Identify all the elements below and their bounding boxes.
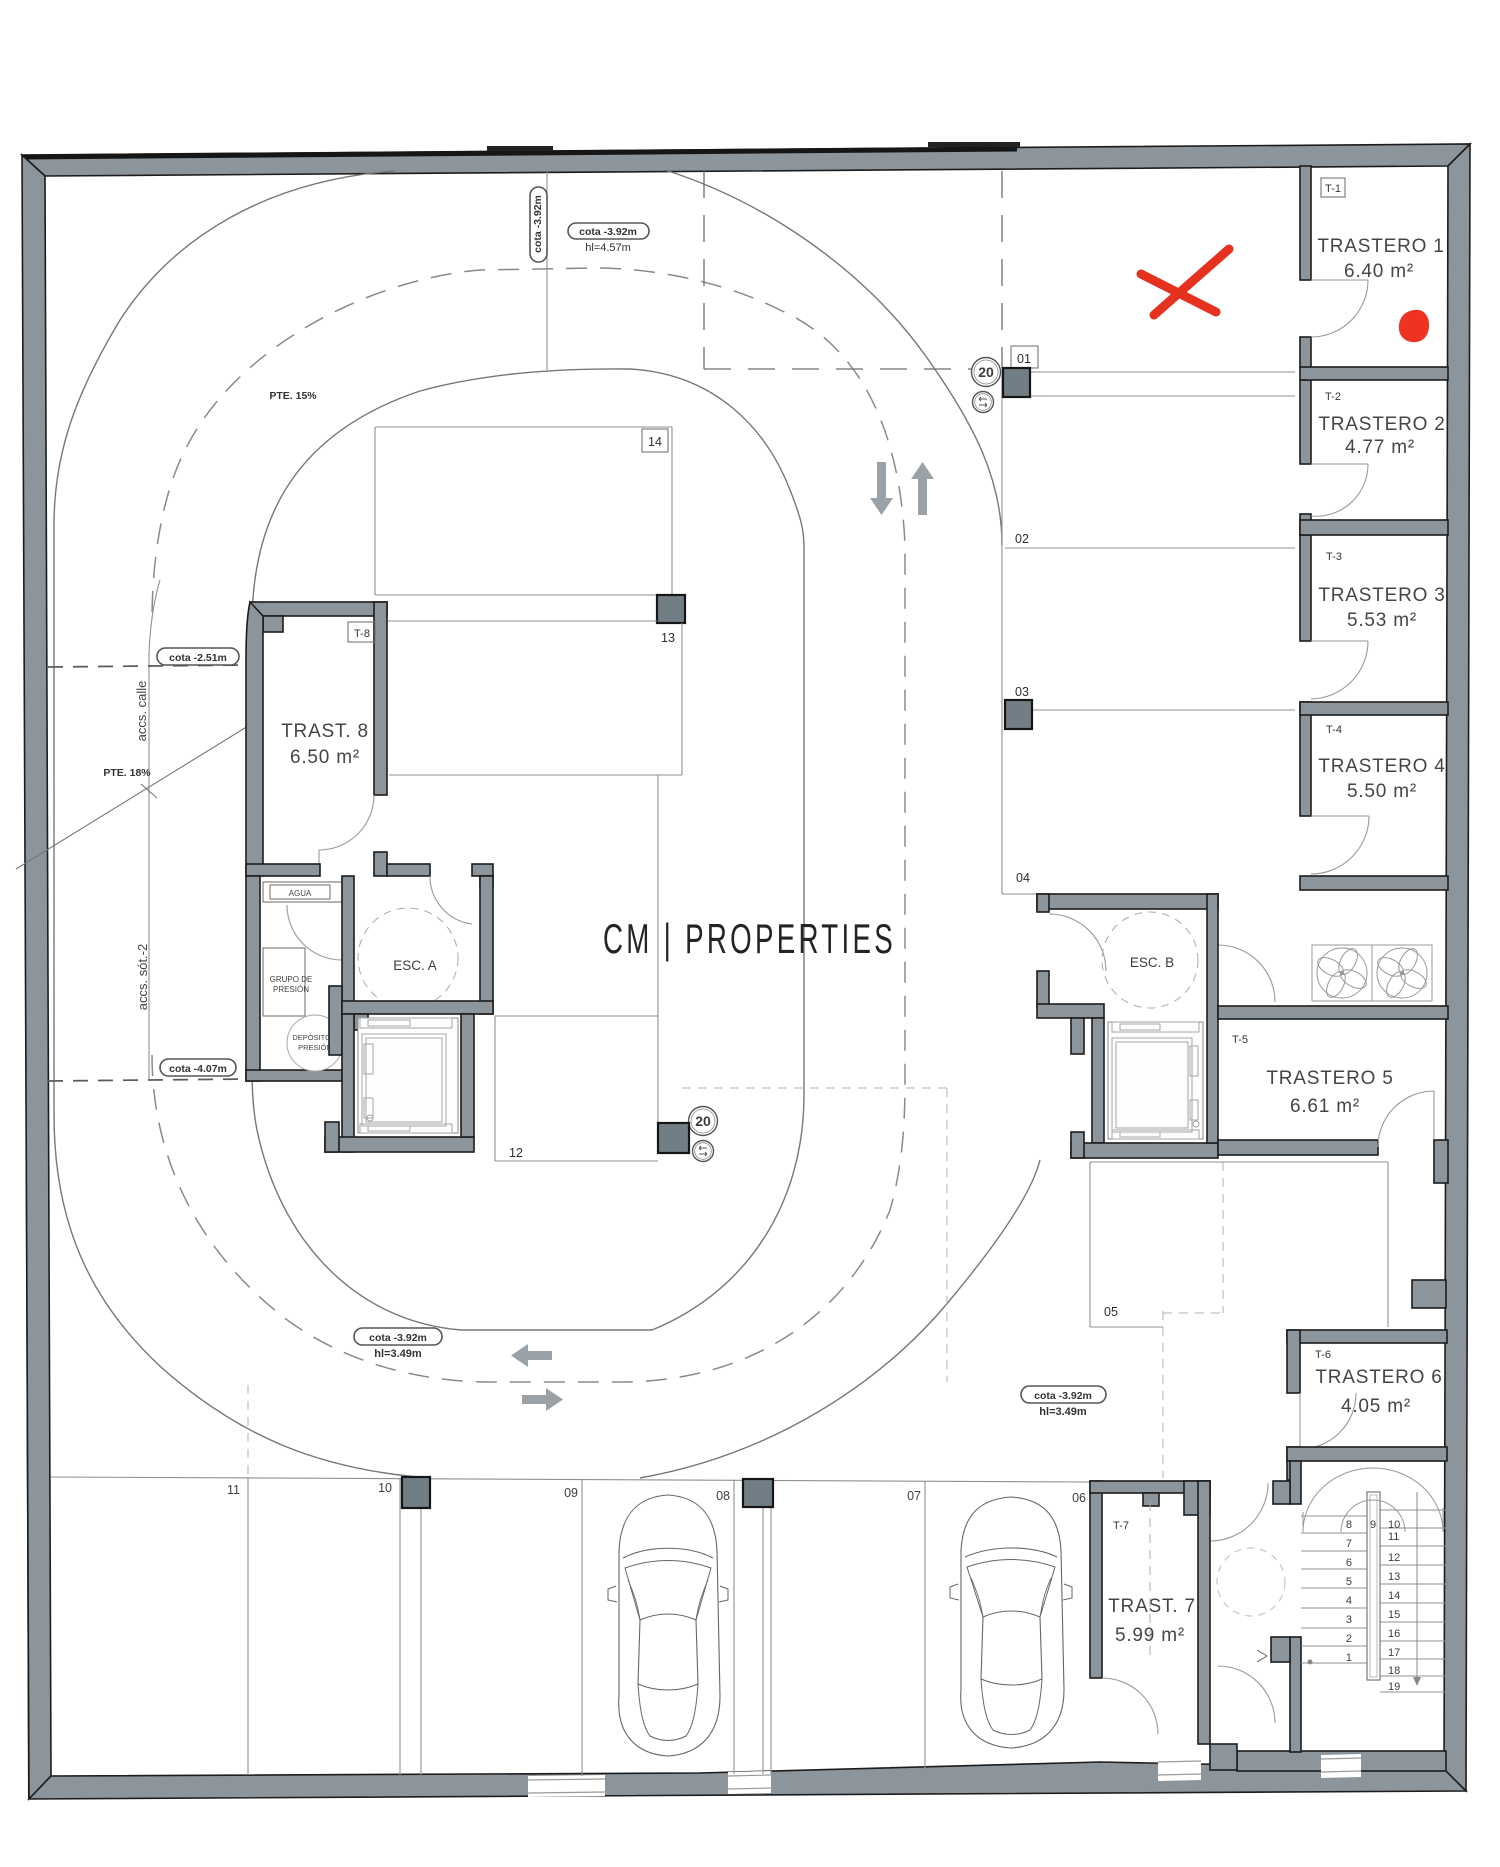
svg-text:02: 02 <box>1015 532 1029 546</box>
svg-text:5.53 m²: 5.53 m² <box>1347 610 1417 631</box>
svg-text:6.61 m²: 6.61 m² <box>1290 1096 1360 1117</box>
svg-text:19: 19 <box>1388 1681 1400 1693</box>
svg-text:05: 05 <box>1104 1305 1118 1319</box>
svg-text:11: 11 <box>1388 1531 1399 1543</box>
svg-text:cota -3.92m: cota -3.92m <box>579 226 637 238</box>
svg-text:cota -3.92m: cota -3.92m <box>532 195 544 253</box>
svg-text:12: 12 <box>509 1146 523 1160</box>
svg-text:3: 3 <box>1346 1614 1352 1626</box>
svg-text:T-6: T-6 <box>1315 1349 1331 1361</box>
svg-text:4.05 m²: 4.05 m² <box>1341 1396 1411 1417</box>
svg-text:T-7: T-7 <box>1113 1520 1129 1532</box>
svg-text:2: 2 <box>1346 1633 1352 1645</box>
svg-text:CM | PROPERTIES: CM | PROPERTIES <box>603 915 896 962</box>
svg-text:TRASTERO 1: TRASTERO 1 <box>1317 236 1444 257</box>
svg-text:T-3: T-3 <box>1326 551 1342 563</box>
svg-text:T-1: T-1 <box>1325 183 1341 195</box>
svg-text:TRAST. 7: TRAST. 7 <box>1108 1596 1196 1617</box>
svg-text:hl=3.49m: hl=3.49m <box>374 1348 422 1360</box>
svg-text:07: 07 <box>907 1489 921 1503</box>
svg-text:16: 16 <box>1388 1628 1400 1640</box>
svg-text:03: 03 <box>1015 685 1029 699</box>
svg-text:14: 14 <box>1388 1590 1400 1602</box>
svg-text:13: 13 <box>1388 1571 1400 1583</box>
svg-text:TRASTERO 2: TRASTERO 2 <box>1318 414 1445 435</box>
svg-text:20: 20 <box>978 364 994 380</box>
svg-text:cota -2.51m: cota -2.51m <box>169 652 227 664</box>
svg-text:cota -3.92m: cota -3.92m <box>369 1332 427 1344</box>
svg-text:T-5: T-5 <box>1232 1034 1248 1046</box>
svg-text:11: 11 <box>227 1483 240 1497</box>
svg-text:13: 13 <box>661 631 675 645</box>
svg-text:9: 9 <box>1370 1519 1376 1531</box>
svg-text:14: 14 <box>648 435 662 449</box>
svg-text:09: 09 <box>564 1486 578 1500</box>
svg-text:accs. calle: accs. calle <box>134 681 149 742</box>
svg-text:PRESIÓN: PRESIÓN <box>273 985 309 994</box>
svg-text:cota -4.07m: cota -4.07m <box>169 1063 227 1075</box>
svg-text:6.50 m²: 6.50 m² <box>290 747 360 768</box>
svg-text:PTE. 18%: PTE. 18% <box>103 767 151 779</box>
svg-text:04: 04 <box>1016 871 1030 885</box>
svg-text:18: 18 <box>1388 1665 1400 1677</box>
svg-text:8: 8 <box>1346 1519 1352 1531</box>
svg-text:01: 01 <box>1017 352 1031 366</box>
svg-text:6.40 m²: 6.40 m² <box>1344 261 1414 282</box>
svg-text:PRESIÓN: PRESIÓN <box>298 1043 332 1052</box>
svg-text:17: 17 <box>1388 1647 1400 1659</box>
svg-text:GRUPO DE: GRUPO DE <box>270 975 313 984</box>
svg-text:TRASTERO 6: TRASTERO 6 <box>1315 1367 1442 1388</box>
svg-text:accs. sót.-2: accs. sót.-2 <box>135 944 150 1010</box>
svg-text:PTE. 15%: PTE. 15% <box>269 390 317 402</box>
svg-text:4.77 m²: 4.77 m² <box>1345 437 1415 458</box>
svg-text:cota -3.92m: cota -3.92m <box>1034 1390 1092 1402</box>
svg-text:5: 5 <box>1346 1576 1352 1588</box>
svg-text:06: 06 <box>1072 1491 1086 1505</box>
svg-text:T-8: T-8 <box>354 628 370 640</box>
svg-text:7: 7 <box>1346 1538 1352 1550</box>
svg-text:12: 12 <box>1388 1552 1400 1564</box>
svg-text:ESC. A: ESC. A <box>393 958 437 973</box>
svg-text:20: 20 <box>695 1113 711 1129</box>
svg-text:hl=4.57m: hl=4.57m <box>585 242 631 254</box>
svg-text:10: 10 <box>378 1481 392 1495</box>
svg-text:TRASTERO 4: TRASTERO 4 <box>1318 756 1445 777</box>
svg-text:ESC. B: ESC. B <box>1130 955 1174 970</box>
svg-text:TRASTERO 5: TRASTERO 5 <box>1266 1068 1393 1089</box>
svg-text:08: 08 <box>716 1489 730 1503</box>
svg-text:hl=3.49m: hl=3.49m <box>1039 1406 1087 1418</box>
svg-text:T-2: T-2 <box>1325 391 1341 403</box>
svg-text:T-4: T-4 <box>1326 724 1342 736</box>
svg-text:15: 15 <box>1388 1609 1400 1621</box>
svg-text:AGUA: AGUA <box>289 889 312 898</box>
svg-text:TRAST. 8: TRAST. 8 <box>281 721 369 742</box>
svg-text:10: 10 <box>1388 1519 1400 1531</box>
svg-text:TRASTERO 3: TRASTERO 3 <box>1318 585 1445 606</box>
svg-text:4: 4 <box>1346 1595 1352 1607</box>
svg-text:5.50 m²: 5.50 m² <box>1347 781 1417 802</box>
svg-text:1: 1 <box>1346 1652 1352 1664</box>
svg-text:6: 6 <box>1346 1557 1352 1569</box>
